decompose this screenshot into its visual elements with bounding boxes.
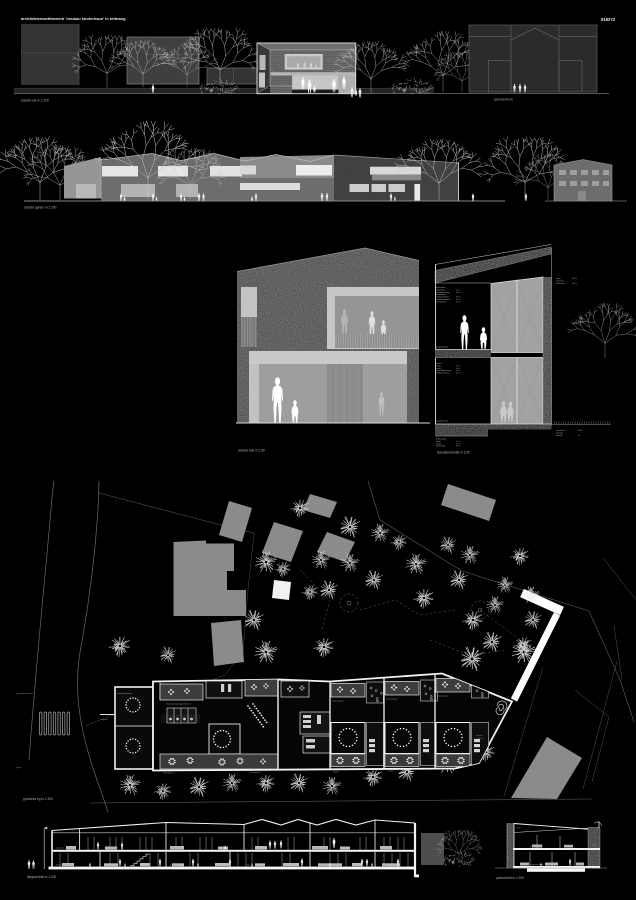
svg-text:gruppenraum: gruppenraum <box>318 864 330 867</box>
svg-text:zugang: zugang <box>101 719 108 721</box>
svg-text:25 cm: 25 cm <box>456 446 461 448</box>
svg-text:ansicht süd m 1:50: ansicht süd m 1:50 <box>238 449 265 453</box>
svg-text:windfang: windfang <box>476 738 483 740</box>
svg-text:kindergarten 2: kindergarten 2 <box>250 771 262 774</box>
svg-text:architektenwettbewerb 'neubau: architektenwettbewerb 'neubau kinderhaus… <box>21 16 126 21</box>
svg-text:aufkantung: aufkantung <box>556 282 565 285</box>
svg-text:gelände: gelände <box>556 435 562 437</box>
svg-text:gruppenraum: gruppenraum <box>436 421 448 423</box>
svg-text:eingang: eingang <box>476 735 482 737</box>
svg-text:kindergarten 1: kindergarten 1 <box>163 772 175 775</box>
svg-text:längsschnitt m 1:200: längsschnitt m 1:200 <box>27 875 56 879</box>
svg-text:ok: ok <box>578 435 580 437</box>
svg-text:gruppe: gruppe <box>382 864 388 867</box>
svg-text:918273: 918273 <box>601 17 616 22</box>
svg-text:kindergarten: kindergarten <box>108 847 119 850</box>
svg-text:krippengruppe: krippengruppe <box>332 701 344 703</box>
svg-text:grundriss eg m 1:200: grundriss eg m 1:200 <box>23 797 53 801</box>
svg-text:krippengruppe: krippengruppe <box>386 699 398 701</box>
svg-text:stahlbetondecke: stahlbetondecke <box>436 372 449 375</box>
svg-text:akustikdecke: akustikdecke <box>436 300 446 303</box>
svg-text:gruppenraum og: gruppenraum og <box>530 846 543 848</box>
svg-text:30 cm: 30 cm <box>578 430 583 432</box>
svg-text:querschnitt m 1:200: querschnitt m 1:200 <box>496 876 524 880</box>
svg-text:krippe 1: krippe 1 <box>333 772 339 774</box>
svg-text:kindergarten: kindergarten <box>170 847 181 850</box>
svg-text:krippe 2: krippe 2 <box>388 771 394 773</box>
svg-text:krippe 3: krippe 3 <box>440 769 446 771</box>
svg-text:personal: personal <box>56 847 64 850</box>
svg-text:mehrzweckraum: mehrzweckraum <box>117 693 132 695</box>
svg-text:fassadenschnitt m 1:50: fassadenschnitt m 1:50 <box>437 451 470 455</box>
svg-text:krippengruppe: krippengruppe <box>437 696 449 698</box>
svg-text:bodenplatte: bodenplatte <box>436 445 445 448</box>
svg-text:35 cm: 35 cm <box>572 278 577 280</box>
svg-text:+3.40: +3.40 <box>592 845 597 847</box>
svg-text:gruppenraum: gruppenraum <box>436 347 448 349</box>
svg-text:20 cm: 20 cm <box>572 283 577 285</box>
svg-text:foyer: foyer <box>246 864 251 867</box>
svg-text:garderobe: garderobe <box>170 864 179 867</box>
svg-text:16 cm: 16 cm <box>456 292 461 294</box>
svg-text:+7.20: +7.20 <box>516 828 521 830</box>
svg-text:gruppenraum eg: gruppenraum eg <box>530 864 543 866</box>
svg-text:kindergartengruppenbereich: kindergartengruppenbereich <box>166 703 191 706</box>
svg-text:22 cm: 22 cm <box>456 373 461 375</box>
svg-text:3 cm: 3 cm <box>456 301 460 303</box>
svg-text:mehrzweckraum: mehrzweckraum <box>56 864 70 867</box>
svg-text:kinderkrippe: kinderkrippe <box>314 847 324 850</box>
svg-text:ansicht ost m 1:200: ansicht ost m 1:200 <box>21 99 49 103</box>
svg-text:ansicht garten m 1:200: ansicht garten m 1:200 <box>24 206 57 210</box>
svg-text:sportzentrum: sportzentrum <box>494 98 513 102</box>
